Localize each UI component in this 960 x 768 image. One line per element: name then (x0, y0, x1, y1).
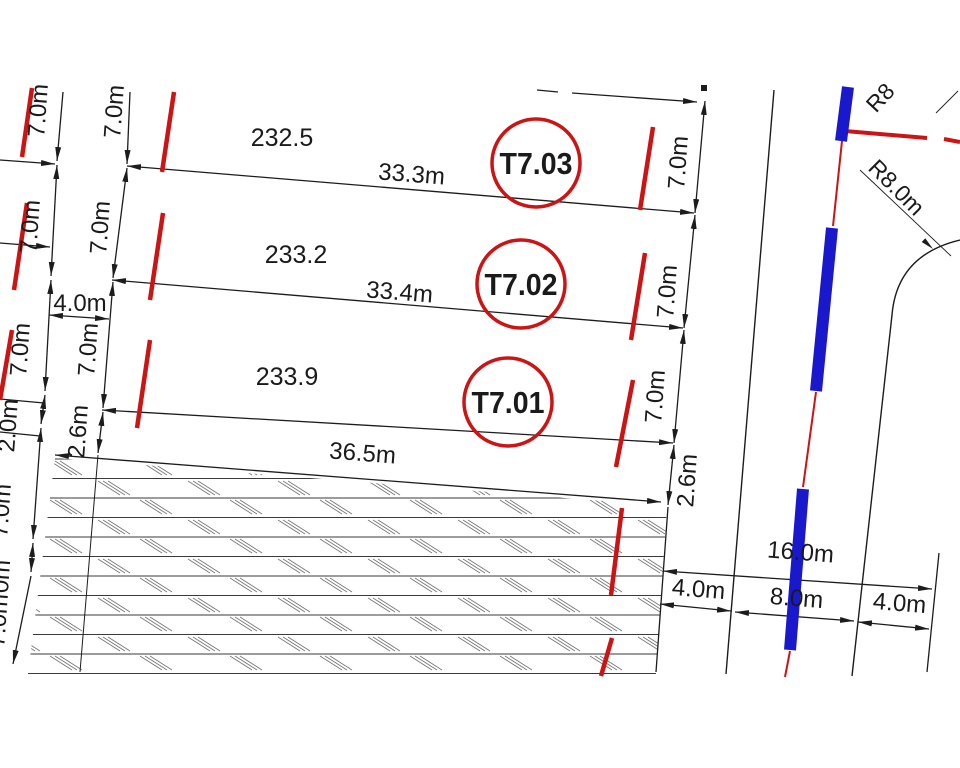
dim-tail-top (537, 90, 558, 92)
chain-seg-short (31, 543, 33, 572)
boundary-marker-dash (162, 92, 174, 172)
left-lot-boundary-stub (0, 160, 55, 164)
chain-seg-7m (45, 280, 51, 391)
area-label-t7-03: 232.5 (251, 124, 314, 152)
radius-label: R8.0m (864, 154, 930, 220)
dim-label-8m: 8.0m (769, 583, 824, 614)
width-label-t7-02: 33.4m (365, 276, 434, 308)
dim-label-7m: 7.0m (85, 200, 116, 255)
radius-labels: R8.0m R8 (861, 78, 930, 221)
centerline-blue-dash (841, 87, 848, 141)
boundary-marker-dash (150, 213, 163, 300)
dim-label-2-6m: 2.6m (63, 404, 94, 459)
dim-label-7m: 7.0m (0, 483, 17, 538)
chain-seg-7m (13, 576, 31, 664)
centerline-red-dash (944, 139, 960, 142)
chain-seg-7m (113, 168, 127, 278)
dim-label-7m: 7.0m (15, 199, 46, 254)
dim-label-2-6m: 2.6m (672, 453, 703, 508)
chain-seg-7m (695, 101, 705, 213)
dim-extension-line (927, 553, 939, 672)
hatched-area (28, 458, 667, 674)
dim-label-2m: 2.0m (0, 398, 24, 453)
dim-label-4m: 4.0m (872, 588, 927, 619)
chain-seg-7m (684, 215, 695, 328)
dim-label-7m: 7.0m (652, 264, 683, 319)
centerline-red-dash (845, 131, 927, 138)
dim-label-16m: 16.0m (766, 536, 835, 568)
dim-label-7m: 7.0m (0, 593, 14, 648)
radius-leader-arrowhead (922, 238, 933, 249)
lot-badge-t7-03: T7.03 (500, 147, 573, 181)
dim-label-4m-alley: 4.0m (53, 290, 106, 317)
chain-seg-7m (33, 428, 41, 539)
centerline-red-thin (803, 392, 816, 487)
dim-label-7m: 7.0m (23, 83, 54, 138)
boundary-marker-dash (631, 253, 645, 340)
boundary-marker-dash (137, 340, 150, 428)
chain-top-tick (701, 85, 707, 91)
lot-boundary-t701 (102, 410, 673, 443)
boundary-marker-dash (640, 127, 653, 210)
lot-badge-t7-01: T7.01 (472, 386, 545, 420)
width-label-t7-03: 33.3m (377, 158, 446, 190)
dim-label-7m: 7.0m (663, 135, 694, 190)
chain-seg-7m (51, 165, 57, 276)
road-edge-west (726, 90, 774, 674)
radius-leader-line-top (936, 91, 958, 113)
chain-seg-7m (57, 92, 63, 161)
area-label-t7-01: 233.9 (256, 363, 319, 391)
top-road-centerline-red (845, 131, 960, 142)
lot-top-dim-line (572, 93, 697, 102)
dim-label-7m: 7.0m (73, 322, 104, 377)
site-plan-canvas: T7.03 T7.02 T7.01 232.5 233.2 233.9 33.3… (0, 0, 960, 768)
lot-badge-t7-02: T7.02 (485, 268, 558, 302)
width-labels: 33.3m 33.4m 36.5m (328, 158, 446, 469)
dim-label-clipped: 0m (0, 559, 16, 594)
centerline-red-thin (833, 141, 842, 226)
boundary-marker-dash (616, 380, 633, 467)
road-verge-dim-line (660, 604, 731, 611)
width-label-t7-01: 36.5m (328, 437, 397, 469)
road-verge-dim-line (858, 622, 929, 629)
radius-label-fragment: R8 (861, 78, 900, 117)
site-plan-drawing: T7.03 T7.02 T7.01 232.5 233.2 233.9 33.3… (0, 0, 960, 768)
lot-badge-labels: T7.03 T7.02 T7.01 (472, 147, 573, 420)
chain-seg-2m (41, 395, 45, 424)
chain-seg-2-6m (98, 412, 103, 453)
area-labels: 232.5 233.2 233.9 (251, 124, 328, 391)
centerline-blue-dash (816, 228, 832, 391)
centerline-blue-dash (790, 489, 803, 650)
dim-label-7m: 7.0m (5, 322, 36, 377)
dim-label-4m: 4.0m (671, 574, 726, 605)
chain-seg-7m (674, 330, 684, 443)
area-label-t7-02: 233.2 (265, 241, 328, 269)
centerline-red-thin (785, 651, 790, 677)
dim-label-7m: 7.0m (99, 84, 130, 139)
dim-label-7m: 7.0m (640, 369, 671, 424)
